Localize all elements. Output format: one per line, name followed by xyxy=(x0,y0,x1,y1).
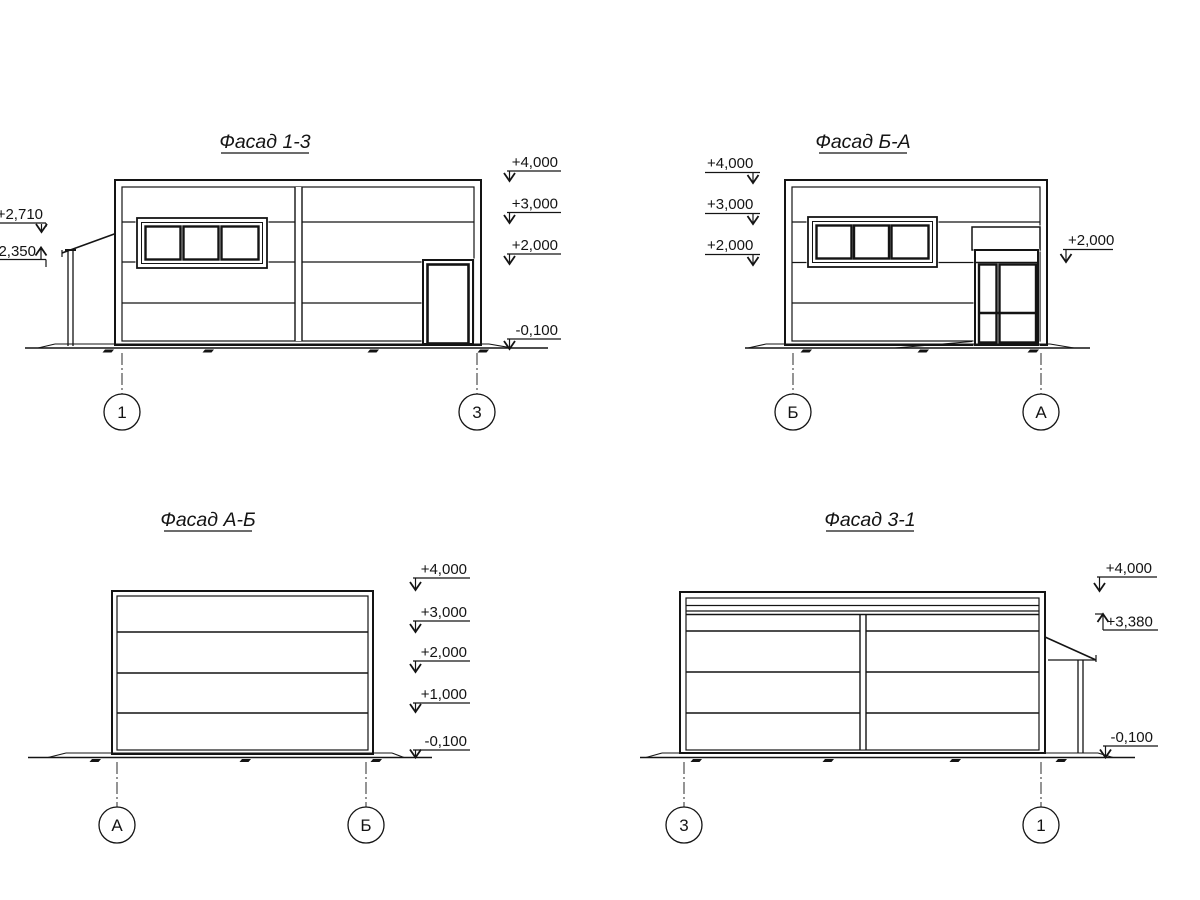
facade-title: Фасад 1-3 xyxy=(219,131,310,153)
elevation-mark: 2,350 xyxy=(0,243,47,267)
annex xyxy=(62,233,117,346)
svg-text:+3,000: +3,000 xyxy=(421,604,467,621)
axis-1: 1 xyxy=(104,353,140,430)
ground-hatches xyxy=(103,350,490,353)
facade-a-b: Фасад А-Б А xyxy=(28,509,470,843)
elevation-mark: +2,710 xyxy=(0,206,47,232)
annex xyxy=(1045,637,1096,753)
svg-text:+2,000: +2,000 xyxy=(1068,232,1114,249)
facade-title: Фасад А-Б xyxy=(160,509,256,531)
axis-label: 1 xyxy=(1036,816,1045,835)
elevation-mark: +4,000 xyxy=(504,154,561,181)
door-canopy xyxy=(971,226,1042,252)
facade-b-a: Фасад Б-А xyxy=(705,131,1114,430)
elevation-mark: -0,100 xyxy=(410,733,470,758)
elevation-mark: +2,000 xyxy=(705,237,760,265)
svg-text:-0,100: -0,100 xyxy=(515,322,558,339)
axis-1: 1 xyxy=(1023,762,1059,843)
facade-1-3: Фасад 1-3 xyxy=(0,131,561,430)
svg-text:+4,000: +4,000 xyxy=(421,561,467,578)
svg-text:+3,000: +3,000 xyxy=(707,196,753,213)
elevation-drawing: Фасад 1-3 xyxy=(0,0,1200,900)
svg-text:+2,000: +2,000 xyxy=(707,237,753,254)
axis-label: 3 xyxy=(472,403,481,422)
glass-door xyxy=(974,249,1040,347)
axis-b: Б xyxy=(775,353,811,430)
svg-text:+4,000: +4,000 xyxy=(512,154,558,171)
elevation-mark: -0,100 xyxy=(504,322,561,349)
axis-3: 3 xyxy=(666,762,702,843)
axis-a: А xyxy=(1023,353,1059,430)
svg-text:+1,000: +1,000 xyxy=(421,686,467,703)
wall-divider xyxy=(295,187,303,341)
facade-3-1: Фасад 3-1 xyxy=(640,509,1158,843)
facade-title: Фасад 3-1 xyxy=(824,509,915,531)
elevation-mark: +3,000 xyxy=(410,604,470,632)
axis-label: Б xyxy=(360,816,371,835)
svg-text:+2,000: +2,000 xyxy=(421,644,467,661)
window xyxy=(807,216,939,269)
window xyxy=(136,217,269,270)
svg-text:-0,100: -0,100 xyxy=(424,733,467,750)
axis-label: А xyxy=(1035,403,1047,422)
svg-text:-0,100: -0,100 xyxy=(1110,729,1153,746)
axis-3: 3 xyxy=(459,353,495,430)
axis-label: Б xyxy=(787,403,798,422)
wall-divider xyxy=(860,615,867,751)
axis-label: А xyxy=(111,816,123,835)
svg-text:+2,000: +2,000 xyxy=(512,237,558,254)
ground-hatches xyxy=(90,759,383,762)
elevation-mark: +2,000 xyxy=(410,644,470,672)
axis-label: 3 xyxy=(679,816,688,835)
svg-text:+4,000: +4,000 xyxy=(1106,560,1152,577)
main-wall xyxy=(680,592,1045,753)
elevation-mark: +4,000 xyxy=(1094,560,1157,591)
axis-b: Б xyxy=(348,762,384,843)
elevation-mark: +4,000 xyxy=(410,561,470,590)
svg-text:+4,000: +4,000 xyxy=(707,155,753,172)
elevation-mark: +1,000 xyxy=(410,686,470,712)
svg-text:+3,380: +3,380 xyxy=(1107,614,1153,631)
svg-text:+2,710: +2,710 xyxy=(0,206,43,223)
svg-text:+3,000: +3,000 xyxy=(512,196,558,213)
elevation-mark: +2,000 xyxy=(1061,232,1115,262)
elevation-mark: +3,000 xyxy=(705,196,760,224)
ground-hatches xyxy=(691,759,1068,762)
elevation-mark: +3,000 xyxy=(504,196,561,224)
axis-a: А xyxy=(99,762,135,843)
elevation-mark: -0,100 xyxy=(1100,729,1158,758)
ground-hatches xyxy=(801,350,1040,353)
elevation-mark: +4,000 xyxy=(705,155,760,183)
door xyxy=(422,259,475,345)
elevation-mark: +2,000 xyxy=(504,237,561,264)
facade-title: Фасад Б-А xyxy=(815,131,910,153)
svg-text:2,350: 2,350 xyxy=(0,243,36,260)
axis-label: 1 xyxy=(117,403,126,422)
elevation-mark: +3,380 xyxy=(1095,614,1158,631)
ground xyxy=(640,753,1135,762)
blueprint-page: { "drawing": { "background": "#ffffff", … xyxy=(0,0,1200,900)
main-wall xyxy=(112,591,373,754)
